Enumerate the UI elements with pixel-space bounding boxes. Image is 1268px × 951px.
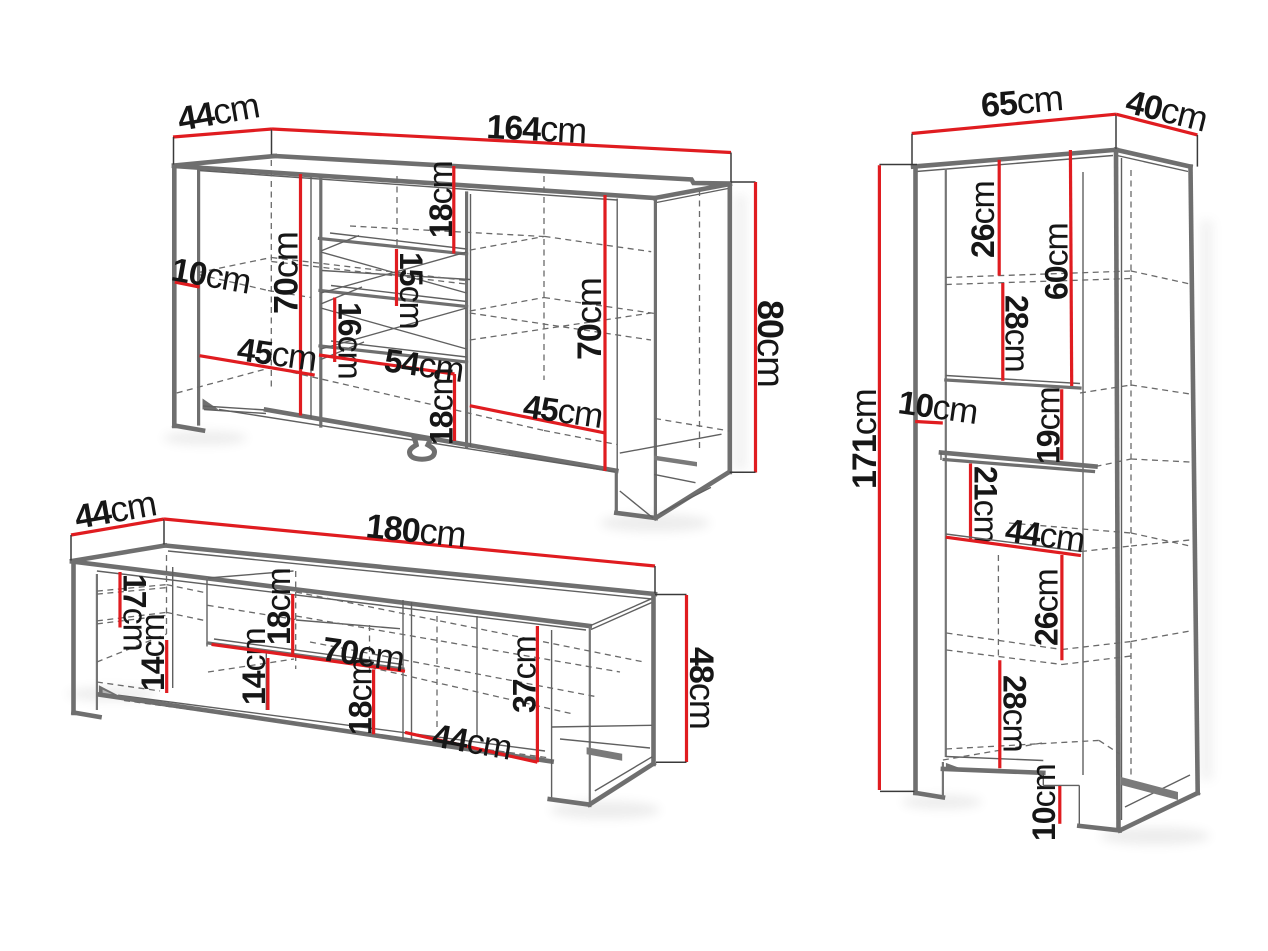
svg-text:171cm: 171cm	[843, 389, 884, 489]
svg-text:48cm: 48cm	[682, 647, 723, 729]
svg-text:15cm: 15cm	[392, 252, 430, 329]
svg-text:10cm: 10cm	[1025, 764, 1063, 841]
svg-text:37cm: 37cm	[506, 636, 544, 713]
svg-text:19cm: 19cm	[1030, 387, 1068, 464]
svg-text:21cm: 21cm	[967, 466, 1005, 543]
svg-text:28cm: 28cm	[998, 295, 1036, 372]
svg-text:16cm: 16cm	[331, 302, 369, 379]
svg-text:14cm: 14cm	[134, 614, 172, 691]
svg-text:18cm: 18cm	[342, 658, 380, 735]
svg-text:18cm: 18cm	[423, 368, 461, 445]
svg-text:70cm: 70cm	[568, 278, 609, 360]
svg-text:28cm: 28cm	[996, 675, 1034, 752]
svg-text:18cm: 18cm	[260, 568, 298, 645]
svg-text:26cm: 26cm	[1028, 569, 1066, 646]
svg-text:18cm: 18cm	[422, 161, 460, 238]
svg-text:164cm: 164cm	[486, 105, 588, 151]
svg-text:26cm: 26cm	[964, 181, 1002, 258]
svg-text:80cm: 80cm	[749, 300, 792, 387]
svg-text:60cm: 60cm	[1038, 223, 1076, 300]
svg-text:70cm: 70cm	[265, 232, 306, 314]
